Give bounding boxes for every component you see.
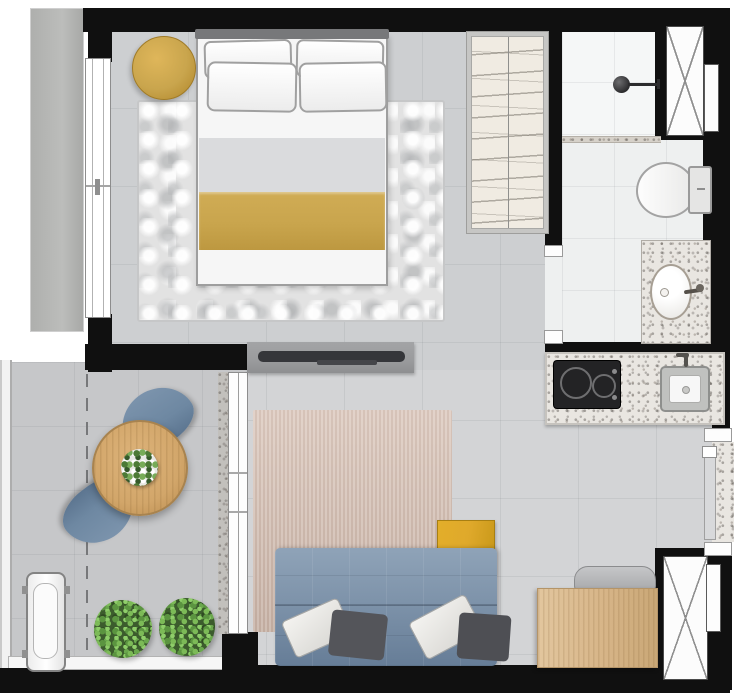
ac-foot bbox=[64, 586, 70, 594]
ac-foot bbox=[64, 650, 70, 658]
ac-unit bbox=[26, 572, 66, 672]
potted-plant-right bbox=[159, 598, 215, 656]
ac-foot bbox=[22, 586, 28, 594]
potted-plant-left bbox=[94, 600, 152, 658]
room-balcony bbox=[0, 0, 734, 693]
ac-inner-panel bbox=[33, 583, 58, 659]
ac-foot bbox=[22, 650, 28, 658]
floor-plan bbox=[0, 0, 734, 693]
table-centerpiece-plant bbox=[121, 449, 158, 486]
